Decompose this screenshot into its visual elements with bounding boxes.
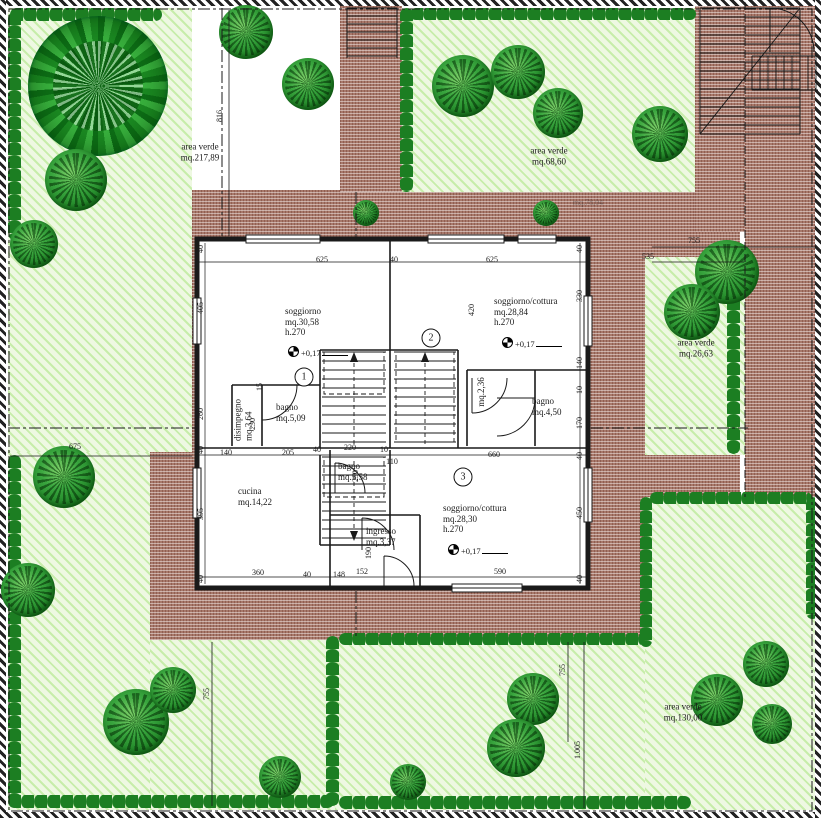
- room-label-line: bagno: [532, 396, 562, 407]
- area-label-line: mq.26,63: [677, 348, 714, 359]
- level-underline: [322, 347, 348, 356]
- dimension-text: 660: [488, 451, 500, 459]
- room-label-line: mq.4,50: [532, 407, 562, 418]
- dimension-text: 152: [356, 568, 368, 576]
- level-marker: +0,17: [288, 346, 348, 358]
- dimension-text: 755: [559, 664, 567, 676]
- level-underline: [482, 545, 508, 554]
- dimension-text: 40: [313, 446, 321, 454]
- dimension-text: 40: [303, 571, 311, 579]
- level-underline: [536, 338, 562, 347]
- room-label-line: h.270: [443, 524, 507, 535]
- dimension-text: 625: [486, 256, 498, 264]
- dimension-text: 405: [197, 302, 205, 314]
- dimension-text: 816: [216, 110, 224, 122]
- dimension-text: 230: [352, 470, 360, 482]
- room-label-line: mq.28,30: [443, 514, 507, 525]
- unit-number: 2: [422, 329, 441, 348]
- dimension-text: mq.78,04: [573, 199, 603, 207]
- level-value: +0,17: [515, 339, 535, 349]
- dimension-text: 590: [494, 568, 506, 576]
- room-label-line: mq.28,84: [494, 307, 558, 318]
- dimension-text: 675: [69, 443, 81, 451]
- room-label: bagnomq.5,09: [276, 402, 306, 423]
- dimension-text: 220: [344, 444, 356, 452]
- room-label-line: disimpegno: [233, 399, 244, 441]
- room-label-line: mq.30,58: [285, 317, 321, 328]
- dimension-text: 190: [365, 547, 373, 559]
- room-label: soggiorno/cotturamq.28,30h.270: [443, 503, 507, 535]
- room-label-line: cucina: [238, 486, 272, 497]
- site-plan-canvas: area verdemq.217,89area verdemq.68,60are…: [0, 0, 821, 818]
- dimension-text: 140: [220, 449, 232, 457]
- level-value: +0,17: [461, 546, 481, 556]
- area-label-line: area verde: [677, 338, 714, 349]
- area-label-line: mq.217,89: [181, 152, 220, 163]
- dimension-text: 535: [642, 253, 654, 261]
- dimension-text: 625: [316, 256, 328, 264]
- room-label-line: mq.14,22: [238, 497, 272, 508]
- labels-layer: area verdemq.217,89area verdemq.68,60are…: [0, 0, 821, 818]
- dimension-text: 40: [390, 256, 398, 264]
- area-label-line: area verde: [181, 142, 220, 153]
- level-marker-icon: [288, 346, 299, 357]
- room-label-line: mq.5,09: [276, 413, 306, 424]
- room-label: bagnomq.4,50: [532, 396, 562, 417]
- dimension-text: 40: [197, 245, 205, 253]
- area-label-line: mq.68,60: [530, 156, 567, 167]
- room-label: cucinamq.14,22: [238, 486, 272, 507]
- dimension-text: 10: [576, 386, 584, 394]
- area-verde-label: area verdemq.26,63: [677, 338, 714, 359]
- room-label-line: ingresso: [366, 526, 396, 537]
- area-label-line: mq.130,00: [664, 712, 703, 723]
- dimension-text: 260: [197, 408, 205, 420]
- dimension-text: 148: [333, 571, 345, 579]
- dimension-text: 10: [380, 446, 388, 454]
- room-label-line: h.270: [494, 317, 558, 328]
- level-value: +0,17: [301, 348, 321, 358]
- unit-number: 1: [295, 368, 314, 387]
- room-label: mq.2,36: [476, 377, 487, 407]
- room-label-line: soggiorno/cottura: [443, 503, 507, 514]
- dimension-text: 15: [256, 383, 264, 391]
- level-marker-icon: [448, 544, 459, 555]
- unit-number: 3: [454, 468, 473, 487]
- dimension-text: 40: [576, 575, 584, 583]
- level-marker-icon: [502, 337, 513, 348]
- dimension-text: 140: [576, 357, 584, 369]
- area-label-line: area verde: [664, 702, 703, 713]
- room-label-line: mq.2,36: [476, 377, 487, 407]
- dimension-text: 40: [197, 575, 205, 583]
- dimension-text: 40: [197, 446, 205, 454]
- room-label: soggiornomq.30,58h.270: [285, 306, 321, 338]
- area-verde-label: area verdemq.68,60: [530, 146, 567, 167]
- dimension-text: 1.005: [574, 741, 582, 759]
- dimension-text: 170: [576, 417, 584, 429]
- dimension-text: 420: [468, 304, 476, 316]
- area-verde-label: area verdemq.130,00: [664, 702, 703, 723]
- room-label-line: bagno: [276, 402, 306, 413]
- room-label-line: mq.3,37: [366, 537, 396, 548]
- room-label: ingressomq.3,37: [366, 526, 396, 547]
- level-marker: +0,17: [502, 337, 562, 349]
- dimension-text: 230: [249, 418, 257, 430]
- room-label-line: soggiorno: [285, 306, 321, 317]
- dimension-text: 40: [576, 452, 584, 460]
- dimension-text: 395: [197, 508, 205, 520]
- room-label-line: soggiorno/cottura: [494, 296, 558, 307]
- dimension-text: 330: [576, 290, 584, 302]
- dimension-text: 450: [576, 507, 584, 519]
- area-label-line: area verde: [530, 146, 567, 157]
- room-label-line: h.270: [285, 327, 321, 338]
- area-verde-label: area verdemq.217,89: [181, 142, 220, 163]
- dimension-text: 755: [688, 237, 700, 245]
- dimension-text: 110: [386, 458, 398, 466]
- dimension-text: 360: [252, 569, 264, 577]
- dimension-text: 40: [576, 245, 584, 253]
- level-marker: +0,17: [448, 544, 508, 556]
- dimension-text: 205: [282, 449, 294, 457]
- dimension-text: 755: [203, 688, 211, 700]
- room-label: soggiorno/cotturamq.28,84h.270: [494, 296, 558, 328]
